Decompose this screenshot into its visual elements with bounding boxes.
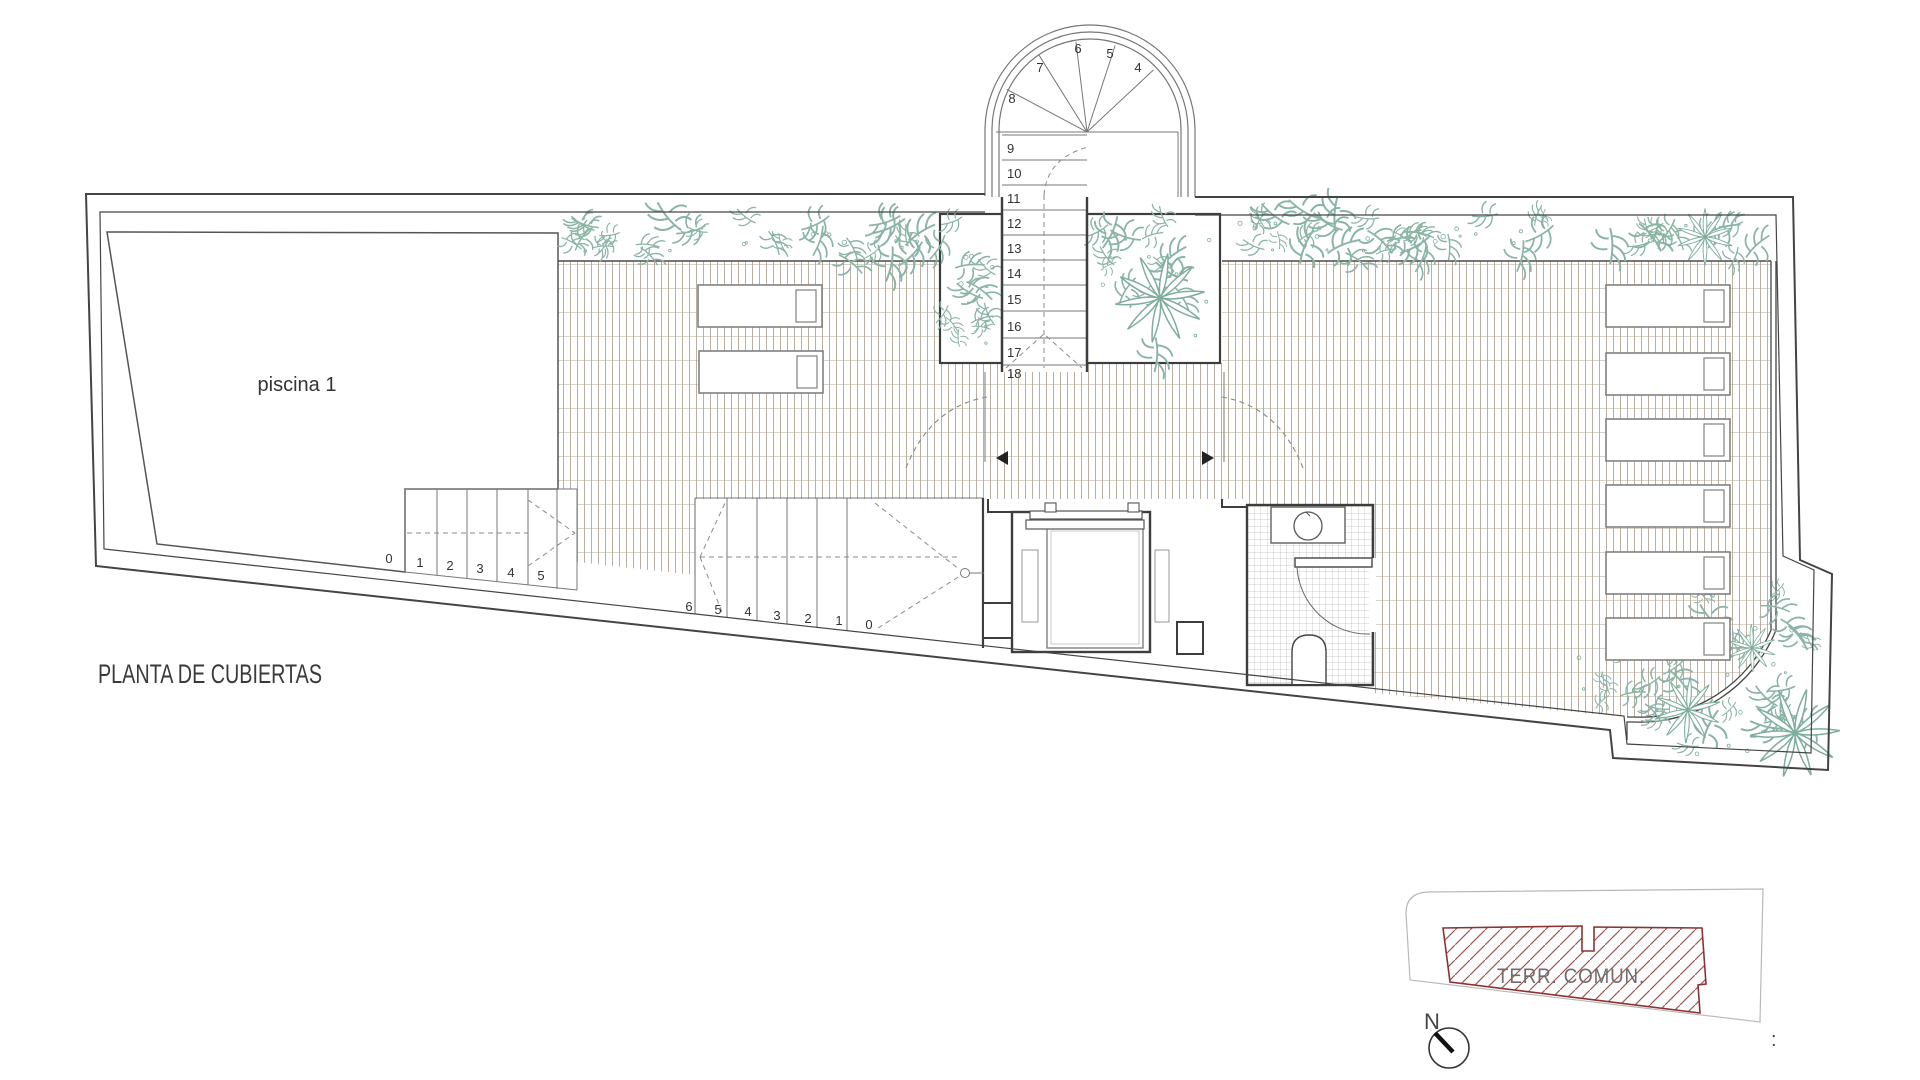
sun-lounger — [1606, 419, 1730, 461]
service-box — [983, 603, 1012, 638]
plant-berry — [1175, 273, 1178, 276]
plant-berry — [1441, 235, 1445, 239]
terrace-stair-number: 5 — [714, 602, 721, 617]
sun-lounger — [1606, 353, 1730, 395]
roof-plan-sheet: piscina 1 0 1 2 3 4 5 6 5 4 3 2 1 0 — [0, 0, 1920, 1080]
plant-berry — [1205, 300, 1208, 303]
sun-lounger — [698, 285, 822, 327]
winder-numbers: 4 5 6 7 8 — [1008, 41, 1141, 106]
plant-sprig — [1266, 229, 1291, 252]
elevator-block — [983, 499, 1247, 654]
plant-sprig — [1637, 213, 1673, 249]
plant-berry — [1272, 249, 1274, 251]
plant-sprig — [865, 199, 903, 242]
keyplan-area-label: TERR. COMUN. — [1497, 965, 1645, 988]
service-box — [1177, 622, 1203, 654]
stair-start-marker — [961, 569, 970, 578]
flight-number: 18 — [1007, 366, 1021, 381]
north-compass: N — [1424, 1009, 1469, 1068]
flight-number: 12 — [1007, 216, 1021, 231]
flight-number: 11 — [1007, 191, 1021, 206]
terrace-stair-number: 0 — [865, 617, 872, 632]
stair-tower: 4 5 6 7 8 9 10 11 12 13 14 15 16 17 18 — [985, 25, 1195, 381]
plant-berry — [828, 233, 831, 236]
plant-berry — [1194, 334, 1197, 337]
plant-sprig — [1303, 198, 1352, 244]
plant-sprig — [1248, 207, 1273, 228]
winder-number: 7 — [1036, 60, 1043, 75]
winder-steps — [996, 42, 1178, 197]
plant-berry — [1772, 663, 1776, 667]
pool-stair: 0 1 2 3 4 5 — [385, 489, 577, 590]
plant-berry — [1366, 237, 1370, 241]
plant-berry — [1101, 283, 1104, 286]
winder-number: 8 — [1008, 91, 1015, 106]
guide-rail — [1155, 550, 1169, 622]
plant-berry — [1459, 235, 1461, 237]
flight-number: 17 — [1007, 345, 1021, 360]
terrace-stair: 6 5 4 3 2 1 0 — [685, 498, 984, 648]
plant-berry — [842, 240, 846, 244]
terrace-stair-number: 2 — [804, 611, 811, 626]
flight-number: 9 — [1007, 141, 1014, 156]
pool-stair-number: 3 — [476, 561, 483, 576]
terrace-stair-number: 6 — [685, 599, 692, 614]
pool-stair-number: 1 — [416, 555, 423, 570]
washbasin — [1294, 512, 1322, 540]
flight-numbers: 9 10 11 12 13 14 15 16 17 18 — [1007, 141, 1021, 381]
pool-stair-number: 0 — [385, 551, 392, 566]
elevator-cab — [1047, 527, 1143, 648]
pool-label: piscina 1 — [258, 374, 337, 396]
keyplan-separator: : — [1771, 1029, 1777, 1051]
plant-palm — [1741, 678, 1849, 788]
pool-zone: piscina 1 — [107, 232, 558, 572]
sun-lounger — [1606, 285, 1730, 327]
roof-deck — [558, 261, 1776, 740]
plant-sprig — [947, 326, 972, 349]
terrace-stair-number: 3 — [773, 608, 780, 623]
terrace-stair-number: 1 — [835, 613, 842, 628]
pool-stair-number: 4 — [507, 565, 514, 580]
plant-sprig — [837, 237, 867, 262]
plant-berry — [1326, 249, 1328, 251]
flight-number: 16 — [1007, 319, 1021, 334]
plant-sprig — [730, 200, 763, 230]
bathroom — [1247, 505, 1376, 685]
plant-sprig — [1717, 696, 1740, 722]
winder-number: 5 — [1106, 46, 1113, 61]
plant-berry — [1148, 256, 1151, 259]
pool-stair-number: 5 — [537, 568, 544, 583]
bathroom-door-leaf — [1295, 558, 1372, 567]
plant-berry — [985, 342, 987, 344]
flight-number: 10 — [1007, 166, 1021, 181]
plant-berry — [1475, 233, 1478, 236]
plant-berry — [1274, 222, 1277, 225]
pool-outline — [107, 232, 558, 572]
toilet — [1292, 635, 1326, 684]
plant-berry — [1519, 230, 1522, 233]
plant-berry — [742, 242, 745, 245]
sun-lounger — [1606, 552, 1730, 594]
north-label: N — [1424, 1009, 1440, 1034]
sun-lounger — [699, 351, 823, 393]
plant-berry — [669, 249, 672, 252]
plant-palm — [1677, 209, 1732, 266]
plant-sprig — [645, 195, 692, 236]
winder-number: 4 — [1134, 60, 1141, 75]
plant-berry — [1739, 711, 1743, 715]
flight-number: 14 — [1007, 266, 1021, 281]
plant-berry — [1208, 238, 1211, 241]
winder-number: 6 — [1074, 41, 1081, 56]
plant-berry — [1362, 250, 1364, 252]
plant-berry — [1455, 227, 1459, 231]
plant-berry — [1685, 224, 1688, 227]
keyplan: TERR. COMUN. : — [1406, 889, 1777, 1051]
plant-sprig — [1101, 256, 1118, 277]
plant-sprig — [1278, 184, 1329, 232]
sun-lounger — [1606, 485, 1730, 527]
roof-plan-drawing: piscina 1 0 1 2 3 4 5 6 5 4 3 2 1 0 — [0, 0, 1920, 1080]
flight-number: 15 — [1007, 292, 1021, 307]
plant-sprig — [1150, 204, 1178, 228]
sun-lounger — [1606, 618, 1730, 660]
page-title: PLANTA DE CUBIERTAS — [98, 659, 322, 689]
plant-sprig — [1236, 227, 1271, 260]
plant-sprig — [939, 206, 963, 235]
plant-berry — [1727, 744, 1730, 747]
plant-berry — [1238, 221, 1242, 225]
plant-sprig — [631, 229, 665, 264]
pool-stair-number: 2 — [446, 558, 453, 573]
terrace-stair-number: 4 — [744, 604, 751, 619]
flight-number: 13 — [1007, 241, 1021, 256]
plant-berry — [811, 233, 815, 237]
elevator-door-rail — [1026, 520, 1144, 529]
plant-berry — [1433, 239, 1437, 243]
plant-berry — [1695, 752, 1699, 756]
plant-berry — [1784, 672, 1786, 674]
